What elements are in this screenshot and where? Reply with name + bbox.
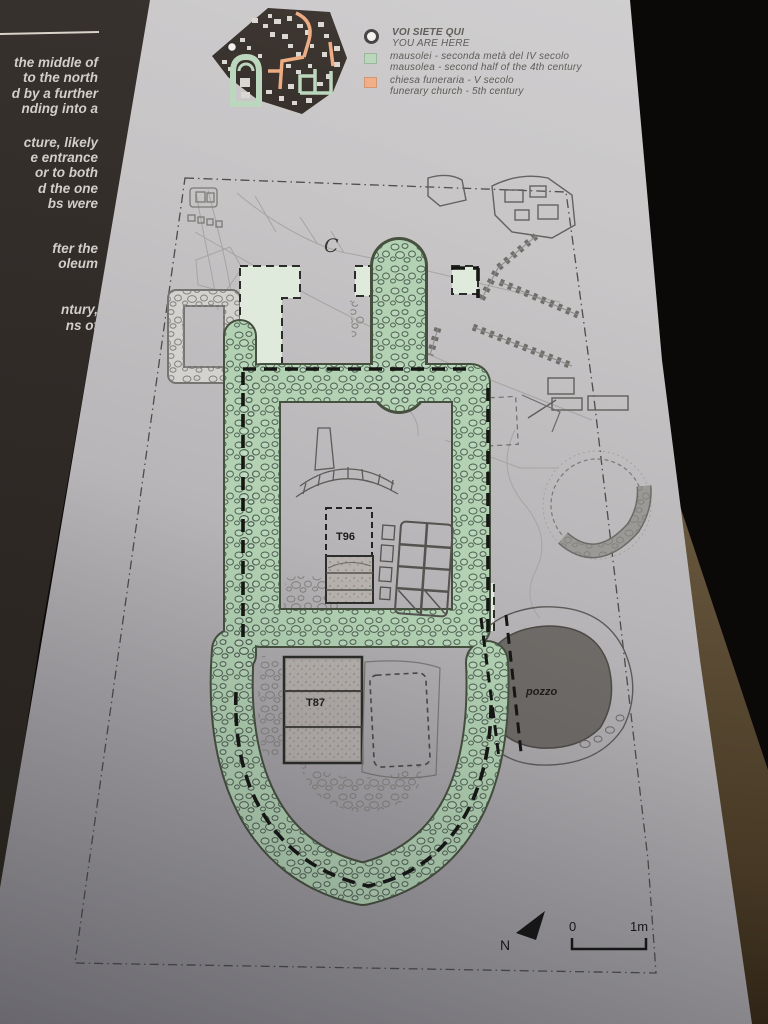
- t96-label: T96: [336, 531, 355, 543]
- mausolea-en: mausolea - second half of the 4th centur…: [390, 62, 582, 73]
- north-arrow: [516, 911, 545, 940]
- site-plan: C T96 T87 pozzo N 0 1m: [75, 175, 656, 973]
- dashed-grave: [362, 661, 440, 778]
- sidebar-line: nding into a: [22, 101, 99, 116]
- compass-and-scale: N 0 1m: [500, 911, 648, 953]
- northwest-structures: [188, 188, 222, 227]
- sidebar-line: the middle of: [14, 55, 98, 70]
- legend-you-are-here: VOI SIETE QUI YOU ARE HERE: [364, 27, 470, 49]
- sidebar-line: ntury,: [61, 302, 98, 317]
- sidebar-line: bs were: [48, 196, 98, 211]
- you-are-here-en: YOU ARE HERE: [392, 38, 470, 49]
- legend-funerary-church: chiesa funeraria - V secolo funerary chu…: [364, 75, 524, 97]
- sidebar-line: d by a further: [12, 86, 98, 101]
- scale-zero: 0: [569, 919, 576, 934]
- you-are-here-icon: [362, 27, 380, 45]
- you-are-here-dot: [227, 42, 237, 52]
- church-it: chiesa funeraria - V secolo: [390, 75, 524, 86]
- sidebar-line: to the north: [23, 70, 98, 85]
- tomb-t87: [284, 657, 362, 763]
- area-c-label: C: [324, 235, 339, 257]
- sidebar-line: cture, likely: [24, 135, 98, 150]
- sidebar-line: d the one: [38, 181, 98, 196]
- church-en: funerary church - 5th century: [390, 86, 524, 97]
- sidebar-line: oleum: [58, 256, 98, 271]
- divider-line: [0, 31, 99, 35]
- t87-label: T87: [306, 697, 325, 709]
- mini-map: [212, 8, 347, 114]
- mausolea-swatch: [364, 53, 377, 64]
- exhibit-photo: the middle of to the north d by a furthe…: [0, 0, 768, 1024]
- church-swatch: [364, 77, 377, 88]
- sidebar-line: or to both: [35, 165, 98, 180]
- sidebar-text: the middle of to the north d by a furthe…: [0, 55, 104, 333]
- you-are-here-it: VOI SIETE QUI: [392, 27, 470, 38]
- tomb-t96: [326, 508, 373, 603]
- round-structure: [543, 451, 651, 559]
- sidebar-line: ns of: [66, 318, 98, 333]
- legend-mausolea: mausolei - seconda metà del IV secolo ma…: [364, 51, 582, 73]
- north-label: N: [500, 937, 510, 953]
- sidebar-line: fter the: [52, 241, 98, 256]
- scale-1m: 1m: [630, 919, 648, 934]
- sidebar-line: e entrance: [30, 150, 98, 165]
- collapsed-roof: [296, 428, 398, 497]
- mausolea-it: mausolei - seconda metà del IV secolo: [390, 51, 582, 62]
- tile-grave-cover: [377, 520, 453, 617]
- pozzo-label: pozzo: [525, 686, 557, 698]
- scale-bar: [572, 938, 646, 949]
